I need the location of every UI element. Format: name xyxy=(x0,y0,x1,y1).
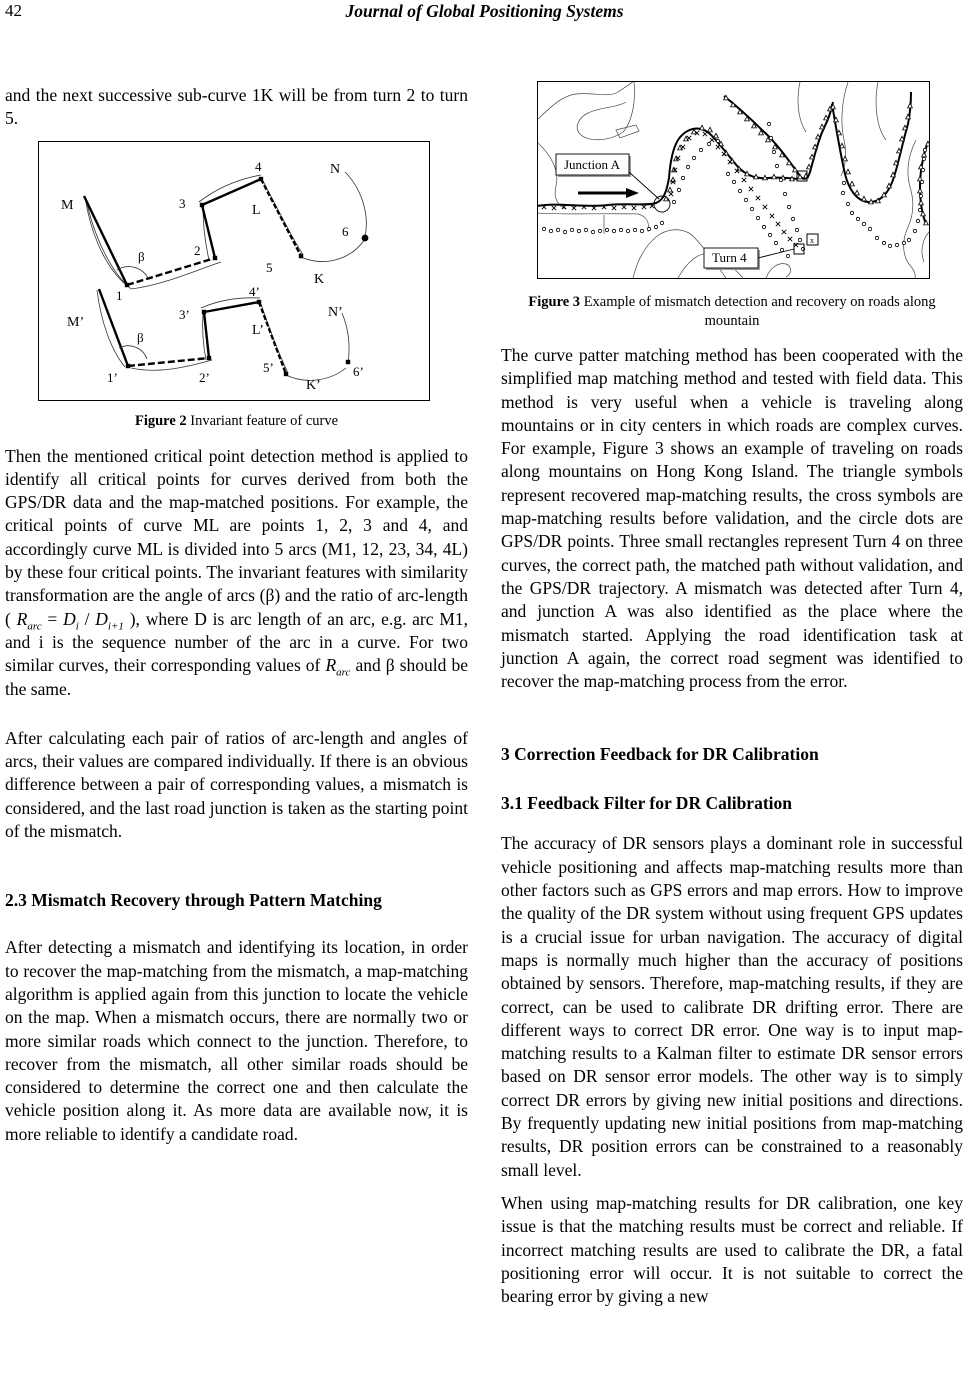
figure2-caption: Figure 2 Invariant feature of curve xyxy=(5,412,468,431)
chord-1p2p xyxy=(128,358,209,366)
figure2-diagram: M 1 β 2 3 4 L N 5 K 6 M’ 1’ β 2’ 3’ 4’ L… xyxy=(38,141,430,401)
label-Np: N’ xyxy=(328,305,343,320)
contour-line xyxy=(766,264,791,278)
label-L: L xyxy=(252,203,261,218)
paragraph-critical-points: Then the mentioned critical point detect… xyxy=(5,445,468,701)
contour-line xyxy=(577,82,634,140)
label-3: 3 xyxy=(179,196,186,211)
figure2-curves-svg: M 1 β 2 3 4 L N 5 K 6 M’ 1’ β 2’ 3’ 4’ L… xyxy=(39,142,429,400)
label-Mp: M’ xyxy=(67,315,84,330)
contour-shape xyxy=(616,125,639,138)
formula-D-i1: D xyxy=(95,609,108,629)
direction-arrow-head xyxy=(626,188,639,198)
figure2-caption-text: Invariant feature of curve xyxy=(187,413,338,429)
label-betap: β xyxy=(137,330,144,345)
chord-Mp1p xyxy=(99,289,128,366)
paragraph-mismatch-recovery: After detecting a mismatch and identifyi… xyxy=(5,936,468,1146)
critical-point-markers xyxy=(125,176,369,375)
label-2p: 2’ xyxy=(199,370,210,385)
turn4-rect-x: x xyxy=(810,236,814,245)
paragraph-dr-accuracy: The accuracy of DR sensors plays a domin… xyxy=(501,832,963,1181)
chord-4L xyxy=(261,179,301,256)
label-2: 2 xyxy=(194,243,201,258)
label-6p: 6’ xyxy=(353,364,364,379)
paragraph-dr-calibration: When using map-matching results for DR c… xyxy=(501,1192,963,1308)
contour-line xyxy=(904,140,916,278)
curve-K xyxy=(301,239,365,261)
label-5: 5 xyxy=(266,260,273,275)
paper-page: 42 Journal of Global Positioning Systems… xyxy=(0,0,969,1390)
paragraph-curve-pattern: The curve patter matching method has bee… xyxy=(501,344,963,693)
turn4-label-text: Turn 4 xyxy=(712,250,747,265)
label-N: N xyxy=(330,162,340,177)
contour-line xyxy=(798,82,806,132)
journal-header-title: Journal of Global Positioning Systems xyxy=(0,1,969,22)
figure2-caption-label: Figure 2 xyxy=(135,413,187,429)
curve-Np xyxy=(342,313,349,363)
contour-line xyxy=(922,232,929,262)
matched-path-triangles xyxy=(664,95,929,225)
chord-M1 xyxy=(84,196,127,285)
heading-2-3: 2.3 Mismatch Recovery through Pattern Ma… xyxy=(5,889,468,912)
gpsdr-circle-dots xyxy=(542,122,926,257)
figure3-caption-text: Example of mismatch detection and recove… xyxy=(580,294,936,329)
contour-line xyxy=(538,213,649,232)
paragraph-comparison: After calculating each pair of ratios of… xyxy=(5,727,468,843)
heading-3-1: 3.1 Feedback Filter for DR Calibration xyxy=(501,792,963,815)
paragraph-subcurve: and the next successive sub-curve 1K wil… xyxy=(5,84,468,131)
label-4p: 4’ xyxy=(249,284,260,299)
heading-3: 3 Correction Feedback for DR Calibration xyxy=(501,743,963,766)
figure3-map-svg: x Junction A Turn 4 xyxy=(538,82,929,278)
chord-34 xyxy=(202,179,261,205)
label-beta: β xyxy=(138,249,145,264)
right-column: x Junction A Turn 4 Figure 3 Example of … xyxy=(501,81,963,1308)
label-3p: 3’ xyxy=(179,307,190,322)
curve-thin xyxy=(199,175,261,202)
label-1: 1 xyxy=(116,288,123,303)
label-6: 6 xyxy=(342,224,349,239)
label-5p: 5’ xyxy=(263,360,274,375)
label-Lp: L’ xyxy=(252,323,264,338)
label-M: M xyxy=(61,198,74,213)
junction-label-text: Junction A xyxy=(564,157,621,172)
label-Kp: K’ xyxy=(306,378,321,393)
contour-line xyxy=(876,82,886,140)
formula-R-arc-2: R xyxy=(325,655,336,675)
formula-D-i: D xyxy=(63,609,76,629)
figure3-map: x Junction A Turn 4 xyxy=(537,81,930,279)
label-4: 4 xyxy=(255,159,262,174)
figure3-caption-label: Figure 3 xyxy=(528,294,580,310)
formula-R-arc: R xyxy=(17,609,28,629)
left-column: and the next successive sub-curve 1K wil… xyxy=(5,84,468,1146)
label-K: K xyxy=(314,272,324,287)
figure3-caption: Figure 3 Example of mismatch detection a… xyxy=(501,293,963,331)
label-1p: 1’ xyxy=(107,370,118,385)
